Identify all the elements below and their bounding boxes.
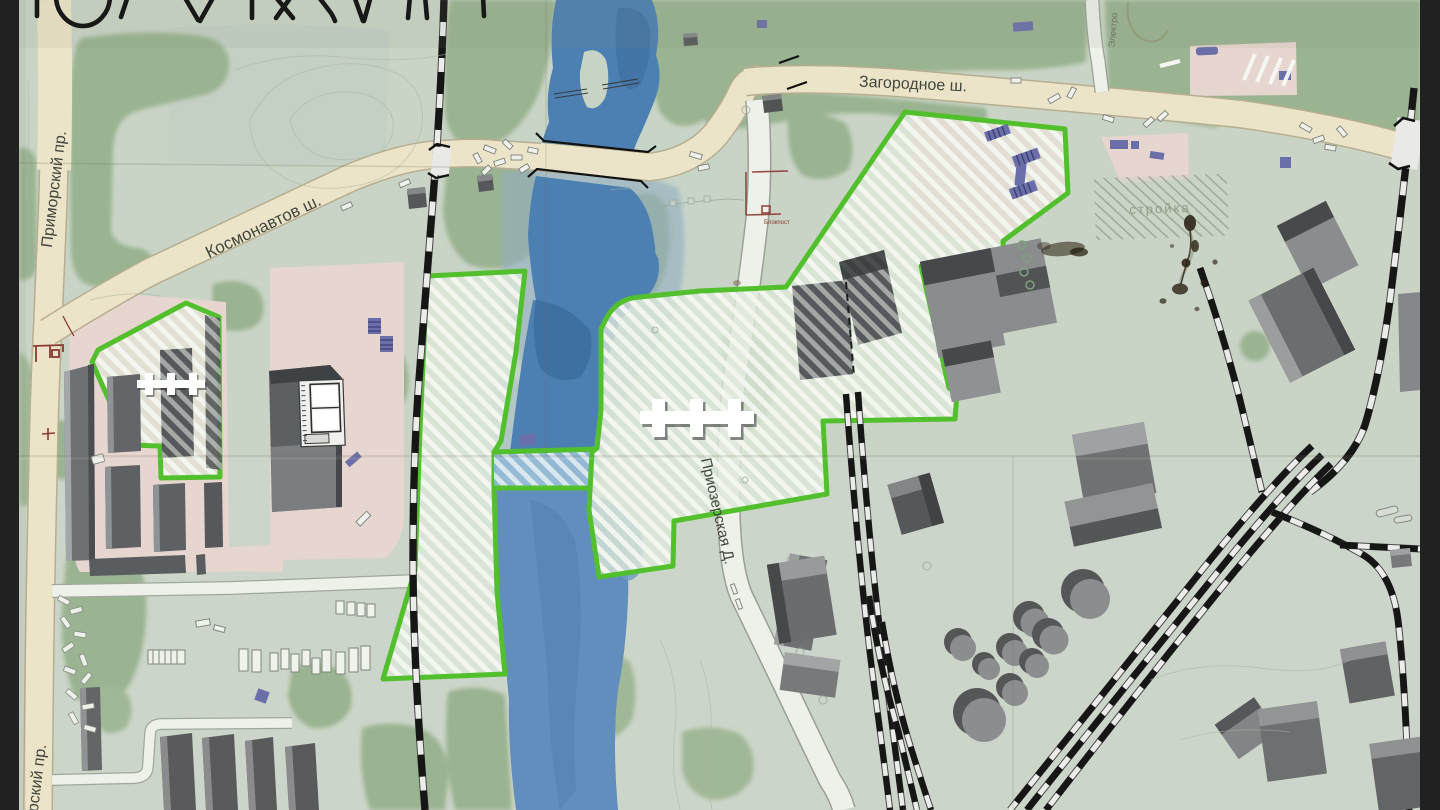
svg-text:стройка: стройка <box>1129 200 1191 217</box>
svg-text:Блокпост: Блокпост <box>764 220 790 226</box>
